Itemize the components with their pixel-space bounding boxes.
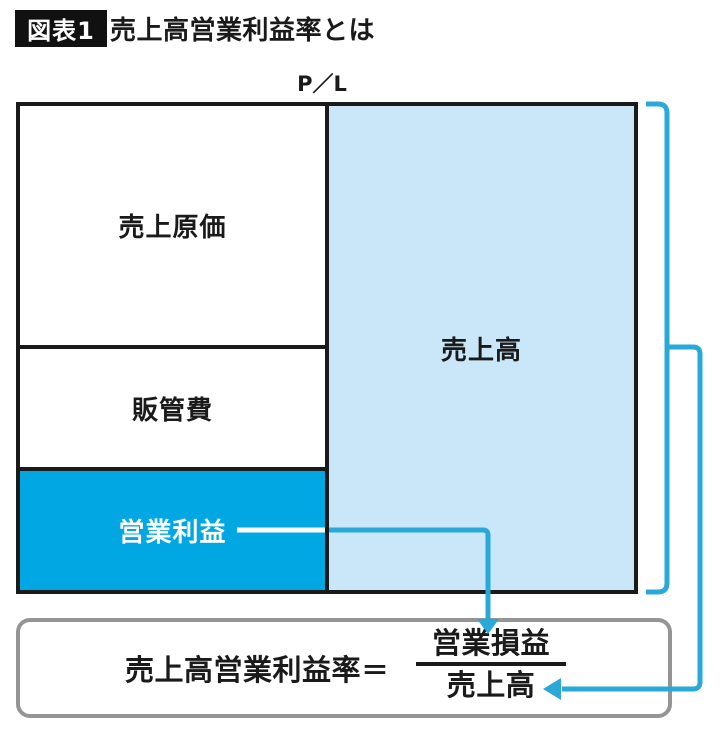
formula-box: 売上高営業利益率 ＝ 営業損益 売上高 (16, 618, 672, 718)
sga-expenses-label: 販管費 (132, 390, 213, 427)
fraction-numerator: 営業損益 (432, 628, 550, 658)
sga-expenses-cell: 販管費 (20, 349, 325, 467)
formula-fraction: 営業損益 売上高 (416, 628, 566, 700)
operating-profit-label: 営業利益 (118, 512, 226, 549)
sales-label: 売上高 (441, 330, 522, 367)
figure-title: 売上高営業利益率とは (110, 10, 375, 47)
sales-cell: 売上高 (329, 106, 634, 590)
figure-number-label: 図表1 (27, 11, 95, 46)
figure-number-badge: 図表1 (15, 10, 107, 47)
formula-lhs: 売上高営業利益率 (125, 622, 361, 714)
fraction-bar (416, 662, 566, 666)
cost-of-sales-label: 売上原価 (118, 207, 226, 244)
cost-of-sales-cell: 売上原価 (20, 106, 325, 345)
pl-axis-label: P／L (288, 68, 356, 98)
sales-bracket (646, 104, 667, 592)
fraction-denominator: 売上高 (447, 670, 536, 700)
formula-equals-sign: ＝ (360, 622, 390, 714)
pl-chart: 売上原価 売上高 販管費 営業利益 (16, 102, 638, 594)
figure-title-text: 売上高営業利益率とは (110, 10, 375, 47)
figure-operating-margin: 図表1 売上高営業利益率とは P／L 売上原価 売上高 販管費 営業利益 売上高… (0, 0, 720, 733)
operating-profit-cell: 営業利益 (20, 471, 325, 590)
